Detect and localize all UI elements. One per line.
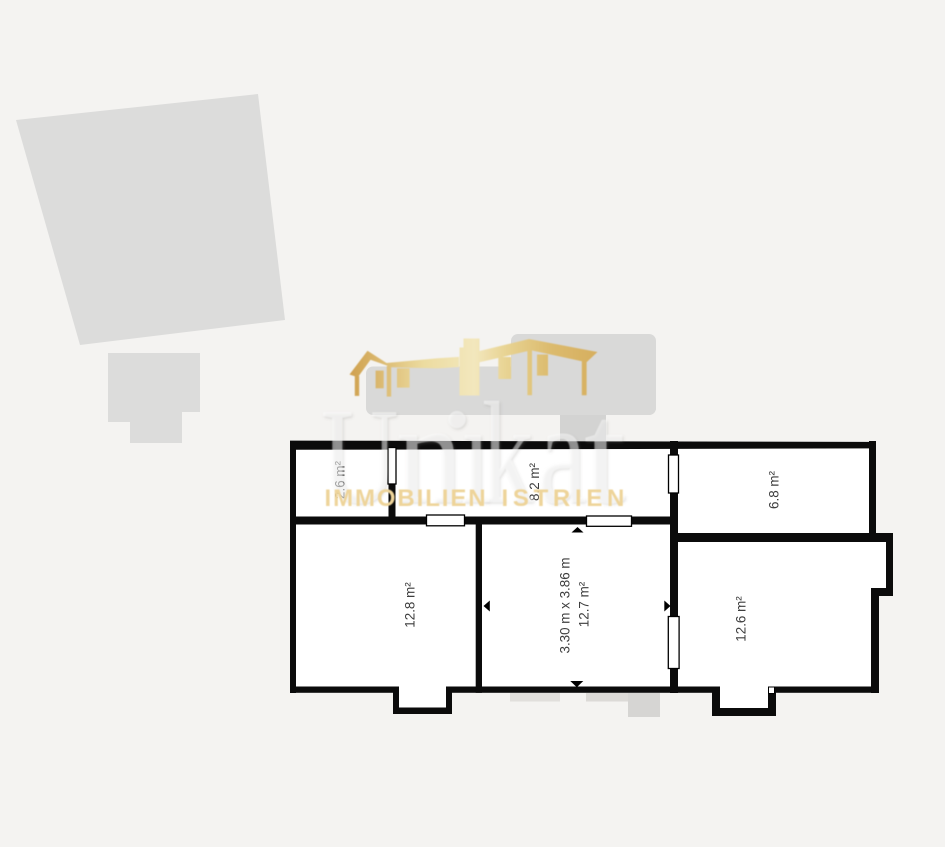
- svg-text:6.8 m²: 6.8 m²: [767, 470, 782, 508]
- svg-text:12.7 m²: 12.7 m²: [577, 581, 592, 627]
- svg-text:IMMOBILIEN: IMMOBILIEN: [325, 485, 488, 512]
- svg-text:12.8 m²: 12.8 m²: [403, 582, 418, 628]
- svg-text:12.6 m²: 12.6 m²: [734, 596, 749, 642]
- svg-text:3.30 m x 3.86 m: 3.30 m x 3.86 m: [558, 557, 573, 653]
- svg-text:ISTRIEN: ISTRIEN: [502, 485, 630, 512]
